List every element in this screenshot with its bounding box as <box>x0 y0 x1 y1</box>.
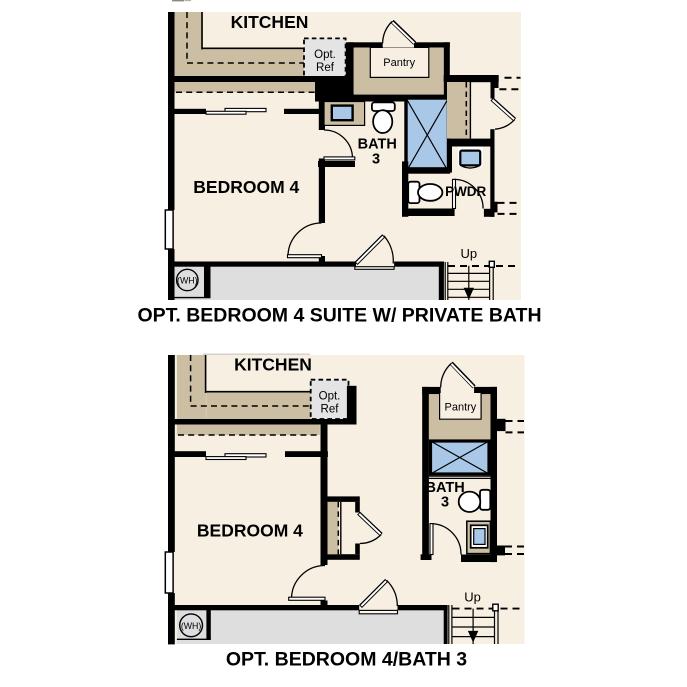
svg-text:Up: Up <box>460 246 477 261</box>
svg-text:Pantry: Pantry <box>383 57 415 69</box>
svg-text:Ref: Ref <box>316 62 335 74</box>
svg-text:PWDR: PWDR <box>445 184 486 199</box>
svg-text:OPT. BEDROOM 4/BATH 3: OPT. BEDROOM 4/BATH 3 <box>226 649 467 671</box>
svg-text:BEDROOM 4: BEDROOM 4 <box>193 177 299 197</box>
svg-text:Ref: Ref <box>321 404 340 416</box>
svg-text:OPT. BEDROOM 4 SUITE W/ PRIVAT: OPT. BEDROOM 4 SUITE W/ PRIVATE BATH <box>137 304 541 326</box>
svg-text:Opt.: Opt. <box>314 49 336 61</box>
svg-text:Opt.: Opt. <box>319 391 341 403</box>
svg-text:KITCHEN: KITCHEN <box>234 355 312 375</box>
svg-text:(WH): (WH) <box>177 275 198 285</box>
svg-text:Up: Up <box>464 590 481 605</box>
svg-text:(WH): (WH) <box>181 621 202 631</box>
svg-text:3: 3 <box>441 495 449 511</box>
svg-text:3: 3 <box>372 152 380 168</box>
svg-text:KITCHEN: KITCHEN <box>231 12 309 32</box>
svg-text:BATH: BATH <box>425 480 464 496</box>
svg-text:BEDROOM 4: BEDROOM 4 <box>197 521 303 541</box>
svg-text:BATH: BATH <box>358 136 397 152</box>
svg-text:Pantry: Pantry <box>445 402 477 414</box>
